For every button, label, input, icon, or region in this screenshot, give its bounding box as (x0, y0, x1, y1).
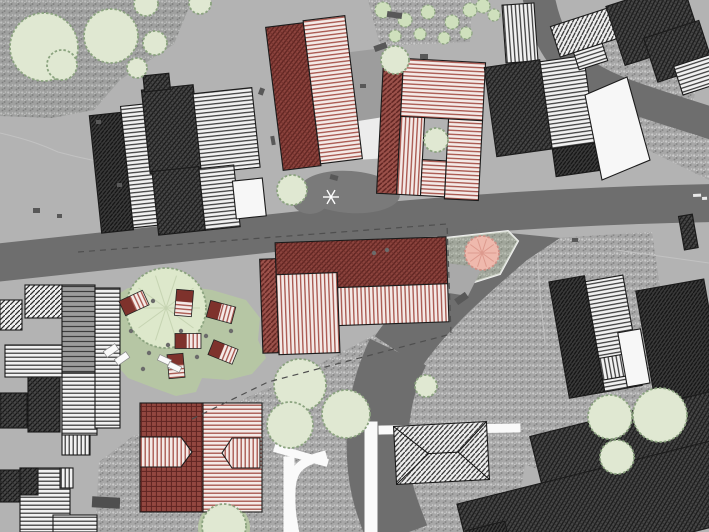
tree-canopy (277, 175, 307, 205)
person-marker (141, 367, 145, 371)
roof-vstripe (60, 468, 73, 488)
person-marker (151, 299, 155, 303)
roof-ladder (62, 285, 95, 373)
roof-redstripev (338, 284, 449, 326)
roof-diagstripe (25, 285, 62, 318)
roof-darkcross (152, 167, 205, 236)
roof-hstripe (53, 515, 97, 532)
roof-darkcross (141, 85, 201, 174)
tree-canopy (143, 31, 167, 55)
roof-redstripev (276, 273, 340, 355)
building-north-small (502, 3, 538, 63)
stall-awning (176, 289, 194, 302)
tree-canopy (134, 0, 158, 16)
person-marker (179, 329, 183, 333)
roof-redstripeh (421, 160, 447, 197)
tree-canopy (438, 32, 450, 44)
roof-darkcross (0, 393, 27, 428)
ground-object (33, 208, 40, 213)
tree-canopy (84, 9, 138, 63)
market-stall (174, 289, 193, 316)
person-marker (147, 351, 151, 355)
flowering-tree (465, 236, 499, 270)
roof-darkcross (143, 73, 171, 92)
tree-canopy (463, 3, 477, 17)
roof-darkcross (0, 470, 20, 502)
roof-vstripe (62, 435, 90, 455)
roof-redstripeh (444, 119, 482, 201)
picnic-table (92, 496, 121, 508)
ground-object (57, 214, 62, 218)
building-red-courtyard (140, 403, 262, 512)
road-marking (693, 194, 701, 197)
roof-hstripe (62, 373, 97, 435)
roof-hstripe (193, 88, 260, 174)
ground-object (420, 54, 428, 59)
tree-canopy (47, 50, 77, 80)
roof-darkcross (28, 377, 60, 432)
roof-white (232, 178, 266, 219)
roof-hstripe (5, 345, 62, 377)
stall-awning (175, 334, 187, 349)
tree-canopy (267, 402, 313, 448)
person-marker (129, 329, 133, 333)
ground-object (117, 183, 122, 187)
road-marking (702, 197, 707, 200)
tree-canopy (389, 30, 401, 42)
person-marker (229, 329, 233, 333)
tree-canopy (414, 28, 426, 40)
market-stall (175, 334, 201, 349)
person-marker (195, 355, 199, 359)
site-plan-figure (0, 0, 709, 532)
roof-diagdark (552, 143, 599, 177)
roof-darkcross (20, 468, 38, 495)
site-plan-canvas (0, 0, 709, 532)
tree-canopy (381, 46, 409, 74)
roof-redstripev (397, 116, 425, 195)
tree-canopy (424, 128, 448, 152)
person-marker (204, 334, 208, 338)
roof-vstripe (502, 3, 538, 63)
tree-canopy (445, 15, 459, 29)
ground-object (96, 120, 101, 124)
tree-canopy (189, 0, 211, 14)
tree-canopy (415, 375, 437, 397)
tree-canopy (460, 27, 472, 39)
person-marker (166, 343, 170, 347)
ground-object (360, 84, 366, 88)
tree-canopy (600, 440, 634, 474)
tree-canopy (588, 395, 632, 439)
tree-canopy (421, 5, 435, 19)
ground-object (572, 238, 578, 242)
tree-canopy (322, 390, 370, 438)
tree-canopy (488, 9, 500, 21)
building-hip-house (394, 422, 490, 485)
tree-canopy (633, 388, 687, 442)
roof-redstripev (140, 437, 192, 467)
roof-redstripeh (401, 58, 486, 120)
building-red-tower (265, 16, 362, 171)
roof-diagstripe (0, 300, 22, 330)
person-marker (385, 248, 389, 252)
person-marker (372, 251, 376, 255)
tree-canopy (127, 58, 147, 78)
